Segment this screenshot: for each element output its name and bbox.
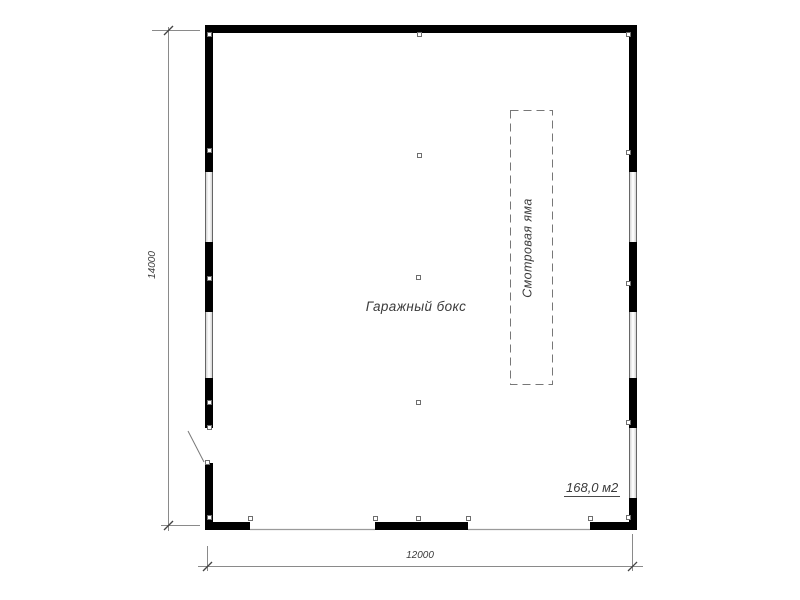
wall-bottom-segment-2 — [375, 522, 468, 530]
column-marker — [207, 425, 212, 430]
inspection-pit-label: Смотровая яма — [521, 198, 535, 297]
wall-left-segment-4 — [205, 463, 213, 530]
window-left-2 — [205, 312, 213, 378]
column-marker — [626, 281, 631, 286]
dim-tick — [203, 562, 212, 571]
dim-tick — [164, 521, 173, 530]
floor-plan-canvas: Гаражный бокс Смотровая яма 168,0 м2 140… — [0, 0, 800, 600]
window-right-2 — [629, 312, 637, 378]
column-marker — [626, 515, 631, 520]
dimension-width-label: 12000 — [406, 550, 434, 561]
window-right-1 — [629, 172, 637, 242]
column-marker — [588, 516, 593, 521]
door-swing-line — [188, 431, 204, 462]
dim-tick — [628, 562, 637, 571]
column-marker — [417, 32, 422, 37]
area-label: 168,0 м2 — [564, 480, 620, 497]
wall-bottom-segment-1 — [205, 522, 250, 530]
column-marker — [626, 150, 631, 155]
column-marker — [205, 460, 210, 465]
room-label: Гаражный бокс — [336, 299, 496, 314]
dimension-height-label-wrap: 14000 — [145, 240, 159, 290]
column-marker — [207, 32, 212, 37]
column-marker — [466, 516, 471, 521]
wall-bottom-segment-3 — [590, 522, 637, 530]
dimension-height-label: 14000 — [147, 251, 158, 279]
dim-tick — [164, 26, 173, 35]
column-marker — [207, 148, 212, 153]
column-marker — [207, 276, 212, 281]
column-marker — [416, 516, 421, 521]
inspection-pit-label-wrap: Смотровая яма — [506, 110, 550, 385]
column-marker — [626, 32, 631, 37]
wall-right-segment-2 — [629, 242, 637, 312]
column-marker — [248, 516, 253, 521]
window-left-1 — [205, 172, 213, 242]
column-marker — [416, 400, 421, 405]
column-marker — [626, 420, 631, 425]
window-right-3 — [629, 428, 637, 498]
column-marker — [416, 275, 421, 280]
column-marker — [373, 516, 378, 521]
dimension-width-label-wrap: 12000 — [355, 545, 485, 563]
column-marker — [417, 153, 422, 158]
column-marker — [207, 400, 212, 405]
column-marker — [207, 515, 212, 520]
